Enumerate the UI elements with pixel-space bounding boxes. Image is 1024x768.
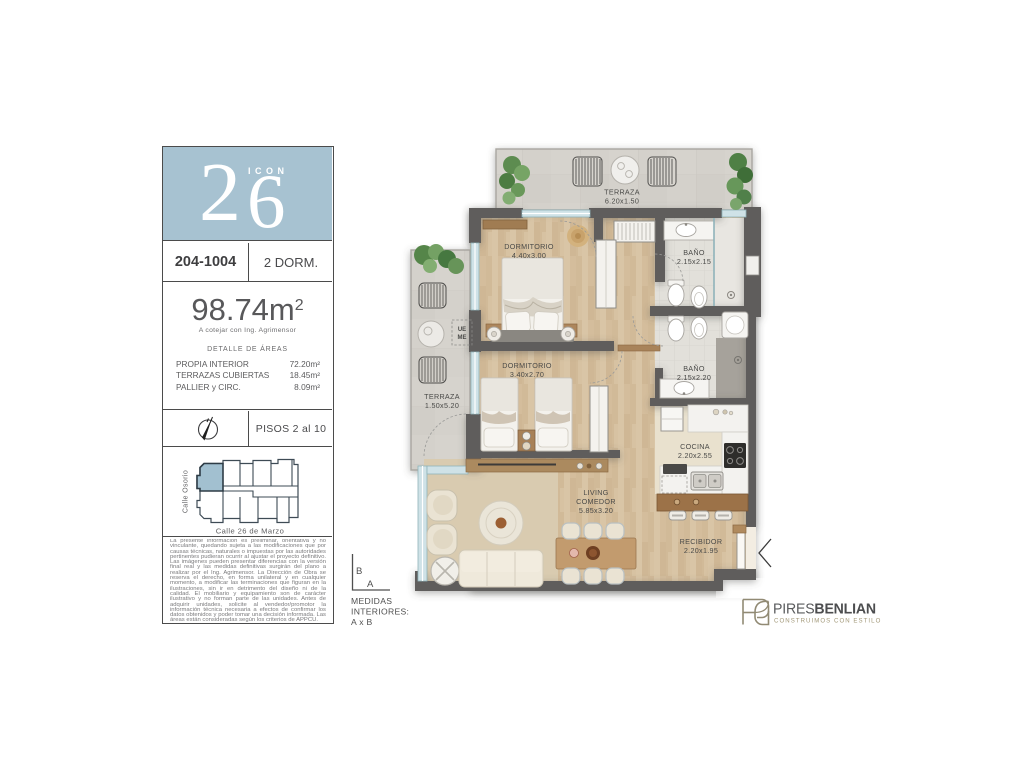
svg-text:A x B: A x B — [351, 617, 373, 627]
svg-text:2.20x2.55: 2.20x2.55 — [678, 451, 712, 460]
svg-text:2.15x2.15: 2.15x2.15 — [677, 257, 711, 266]
svg-text:ME: ME — [458, 335, 467, 341]
svg-text:A: A — [367, 579, 374, 590]
svg-text:B: B — [356, 566, 362, 577]
svg-text:UE: UE — [458, 327, 466, 333]
svg-text:LIVING: LIVING — [583, 488, 608, 497]
svg-text:3.40x2.70: 3.40x2.70 — [510, 370, 544, 379]
svg-text:COMEDOR: COMEDOR — [576, 497, 616, 506]
svg-text:INTERIORES:: INTERIORES: — [351, 607, 409, 617]
svg-text:RECIBIDOR: RECIBIDOR — [680, 537, 723, 546]
svg-text:BAÑO: BAÑO — [683, 364, 705, 373]
svg-text:2.20x1.95: 2.20x1.95 — [684, 546, 718, 555]
svg-text:4.40x3.00: 4.40x3.00 — [512, 251, 546, 260]
svg-text:DORMITORIO: DORMITORIO — [502, 361, 552, 370]
svg-text:CONSTRUIMOS CON ESTILO: CONSTRUIMOS CON ESTILO — [774, 618, 881, 625]
svg-text:MEDIDAS: MEDIDAS — [351, 596, 392, 606]
svg-text:6.20x1.50: 6.20x1.50 — [605, 197, 639, 206]
svg-text:TERRAZA: TERRAZA — [604, 188, 640, 197]
svg-text:TERRAZA: TERRAZA — [424, 392, 460, 401]
svg-text:5.85x3.20: 5.85x3.20 — [579, 506, 613, 515]
svg-text:2.15x2.20: 2.15x2.20 — [677, 373, 711, 382]
svg-text:BAÑO: BAÑO — [683, 248, 705, 257]
svg-text:COCINA: COCINA — [680, 442, 710, 451]
svg-text:PIRESBENLIAN: PIRESBENLIAN — [773, 601, 876, 618]
svg-text:DORMITORIO: DORMITORIO — [504, 242, 554, 251]
svg-text:1.50x5.20: 1.50x5.20 — [425, 401, 459, 410]
